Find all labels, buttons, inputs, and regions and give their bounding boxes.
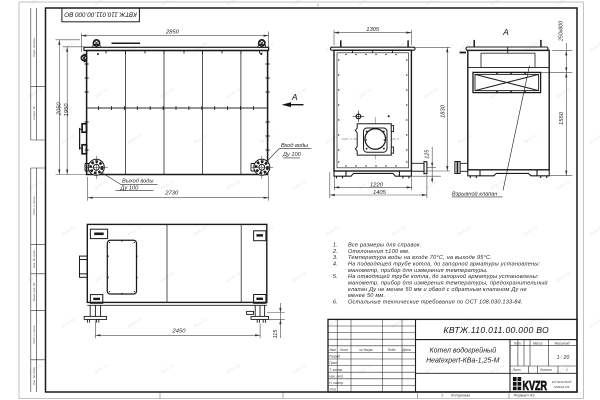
svg-text:Пров.: Пров. bbox=[329, 361, 338, 365]
svg-text:4.: 4. bbox=[333, 262, 338, 268]
svg-text:6.: 6. bbox=[333, 300, 338, 306]
svg-text:А: А bbox=[502, 27, 509, 37]
svg-text:Вход воды: Вход воды bbox=[281, 143, 308, 149]
svg-text:Нач. отд.: Нач. отд. bbox=[329, 374, 343, 378]
svg-text:Подп. и дата: Подп. и дата bbox=[32, 325, 36, 344]
svg-text:1550: 1550 bbox=[559, 111, 565, 125]
svg-text:1950: 1950 bbox=[64, 103, 70, 117]
svg-text:Подп. и дата: Подп. и дата bbox=[32, 196, 36, 215]
svg-text:Лит.: Лит. bbox=[513, 341, 522, 345]
svg-text:1830: 1830 bbox=[440, 104, 446, 118]
svg-text:Выход воды: Выход воды bbox=[122, 179, 153, 185]
svg-text:На подводящей трубе котла, до: На подводящей трубе котла, до запорной а… bbox=[348, 261, 541, 268]
svg-text:Дата: Дата bbox=[401, 348, 411, 352]
svg-text:Отклонения ±100 мм.: Отклонения ±100 мм. bbox=[348, 249, 410, 255]
svg-text:манометр, прибор для измерения: манометр, прибор для измерения температу… bbox=[348, 280, 548, 287]
svg-text:1: 1 bbox=[441, 394, 443, 398]
svg-text:2050: 2050 bbox=[56, 102, 62, 117]
svg-text:Лист: Лист bbox=[339, 348, 349, 352]
svg-text:2.: 2. bbox=[332, 249, 338, 255]
svg-text:Н. контр.: Н. контр. bbox=[329, 381, 343, 385]
svg-text:Взам. инв. №: Взам. инв. № bbox=[32, 282, 36, 301]
svg-text:Лист: Лист bbox=[512, 368, 522, 372]
svg-text:На отводящей трубе котла, до з: На отводящей трубе котла, до запорной ар… bbox=[348, 273, 539, 280]
svg-text:2730: 2730 bbox=[164, 191, 179, 197]
svg-text:1.: 1. bbox=[333, 242, 338, 248]
svg-text:1405: 1405 bbox=[373, 190, 387, 196]
svg-text:Инв. № подл.: Инв. № подл. bbox=[32, 367, 36, 386]
svg-text:Масштаб: Масштаб bbox=[555, 341, 570, 345]
svg-text:2450: 2450 bbox=[172, 329, 187, 335]
svg-text:манометр, прибор для измерения: манометр, прибор для измерения температу… bbox=[348, 268, 488, 274]
svg-text:Перв. примен.: Перв. примен. bbox=[32, 37, 36, 57]
svg-text:Масса: Масса bbox=[533, 341, 543, 345]
svg-text:КВТЖ.110.011.00.000 ВО: КВТЖ.110.011.00.000 ВО bbox=[444, 325, 550, 335]
svg-text:Листов: Листов bbox=[539, 368, 552, 372]
svg-text:№ докум.: № докум. bbox=[359, 348, 373, 352]
svg-text:Инв. № дубл.: Инв. № дубл. bbox=[32, 250, 36, 269]
svg-text:Котел водогрейный: Котел водогрейный bbox=[430, 346, 497, 354]
svg-text:Изм: Изм bbox=[330, 348, 337, 352]
svg-text:250x800: 250x800 bbox=[559, 21, 565, 42]
svg-text:1220: 1220 bbox=[370, 182, 384, 188]
svg-text:Температура воды на входе 70°С: Температура воды на входе 70°С, на выход… bbox=[348, 255, 492, 261]
svg-text:Утв.: Утв. bbox=[329, 387, 336, 391]
svg-text:Все размеры для справок.: Все размеры для справок. bbox=[348, 242, 421, 248]
svg-text:5.: 5. bbox=[333, 274, 338, 280]
svg-text:менее 50 мм.: менее 50 мм. bbox=[348, 293, 385, 299]
svg-text:КВТЖ.110.011.00.000 ВО: КВТЖ.110.011.00.000 ВО bbox=[64, 11, 137, 18]
svg-text:Остальные технические требован: Остальные технические требования по ОСТ … bbox=[348, 300, 523, 306]
svg-text:Копировал: Копировал bbox=[451, 394, 471, 398]
svg-text:Heatexpert-КВа-1,25-М: Heatexpert-КВа-1,25-М bbox=[426, 357, 500, 364]
svg-text:Подп.: Подп. bbox=[388, 348, 397, 352]
svg-text:Справ. №: Справ. № bbox=[32, 105, 36, 119]
svg-text:А: А bbox=[291, 92, 298, 102]
svg-text:1: 1 bbox=[566, 368, 568, 372]
svg-text:125: 125 bbox=[424, 149, 430, 159]
svg-text:2850: 2850 bbox=[165, 30, 180, 36]
svg-text:Т. контр.: Т. контр. bbox=[329, 368, 343, 372]
svg-text:1 : 20: 1 : 20 bbox=[557, 355, 570, 361]
svg-text:Формат А3: Формат А3 bbox=[514, 394, 536, 398]
svg-text:Разраб.: Разраб. bbox=[329, 355, 341, 359]
svg-text:115: 115 bbox=[273, 329, 279, 339]
svg-text:3.: 3. bbox=[333, 255, 338, 261]
svg-text:KVZR: KVZR bbox=[523, 378, 548, 393]
svg-text:Взрывной клапан: Взрывной клапан bbox=[452, 190, 497, 197]
svg-text:1305: 1305 bbox=[366, 27, 380, 33]
svg-text:КОТЕЛЬНЫЙ: КОТЕЛЬНЫЙ bbox=[552, 380, 572, 384]
svg-text:клапан Ду не менее 50 мм и обв: клапан Ду не менее 50 мм и обвод с обрат… bbox=[348, 287, 527, 293]
svg-text:ЗАВОД РФ: ЗАВОД РФ bbox=[554, 385, 570, 389]
svg-text:Ду 100: Ду 100 bbox=[282, 152, 302, 158]
